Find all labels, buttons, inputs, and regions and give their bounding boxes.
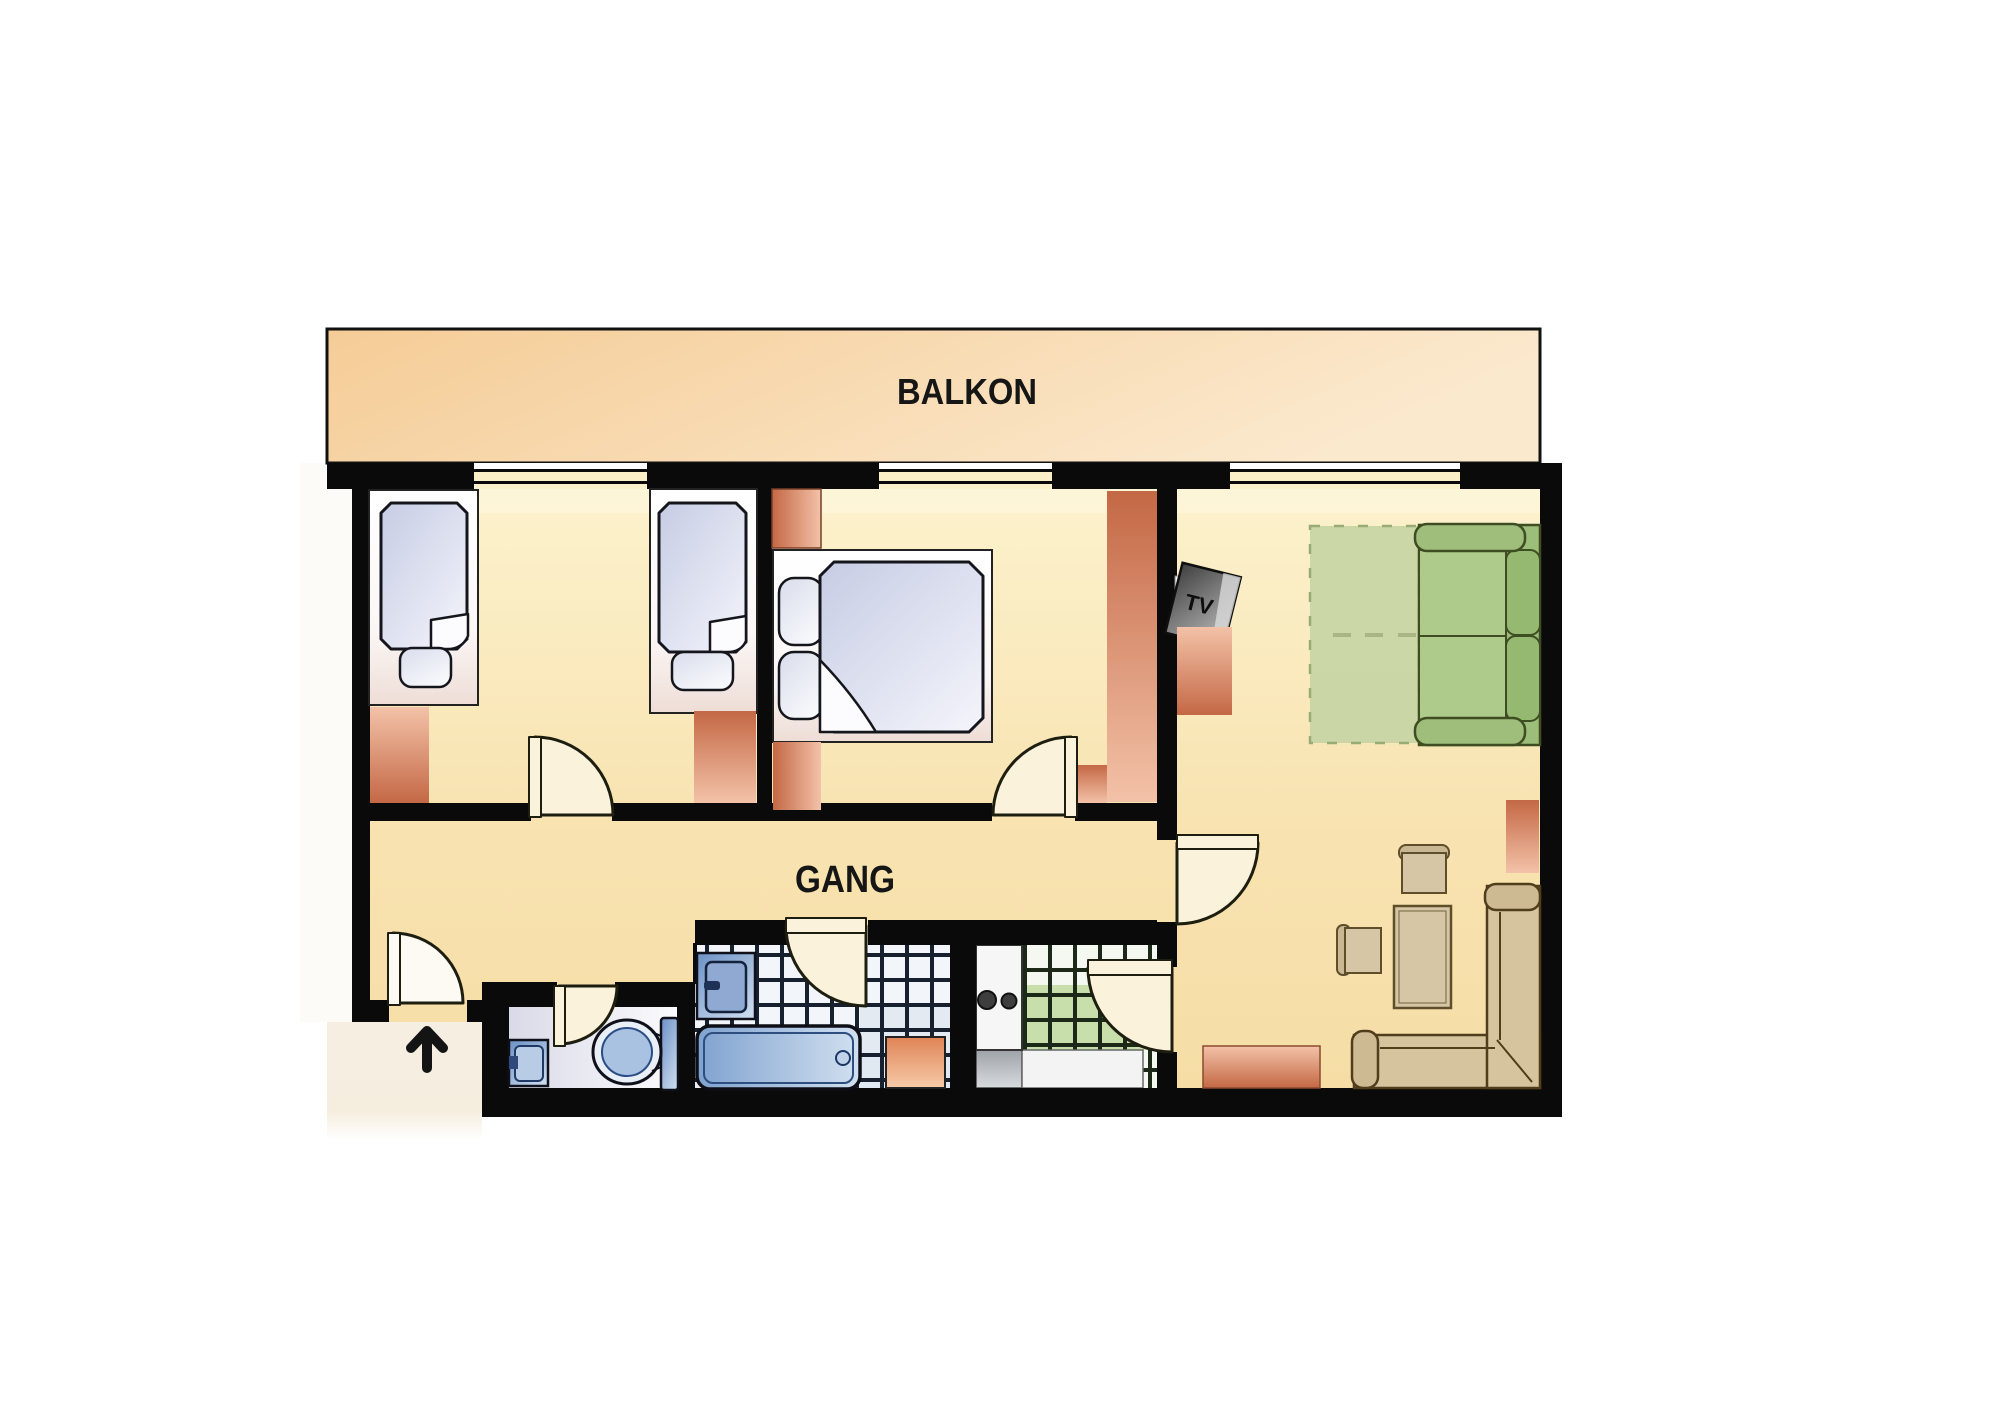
svg-text:BALKON: BALKON: [897, 371, 1037, 412]
svg-text:GANG: GANG: [795, 859, 895, 901]
